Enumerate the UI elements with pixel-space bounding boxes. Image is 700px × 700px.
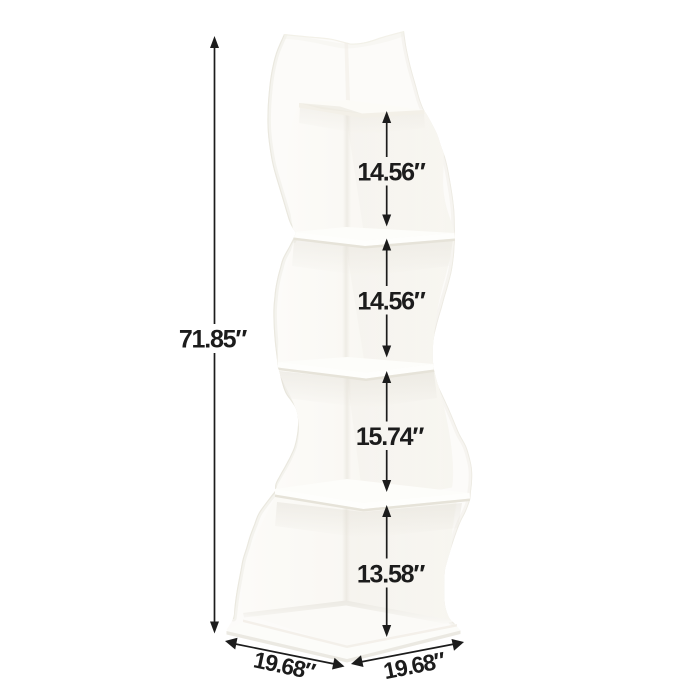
svg-text:13.58″: 13.58″ bbox=[357, 561, 426, 589]
svg-text:14.56″: 14.56″ bbox=[357, 288, 426, 316]
svg-text:15.74″: 15.74″ bbox=[356, 423, 425, 451]
svg-text:71.85″: 71.85″ bbox=[179, 326, 248, 354]
svg-text:14.56″: 14.56″ bbox=[357, 159, 426, 187]
